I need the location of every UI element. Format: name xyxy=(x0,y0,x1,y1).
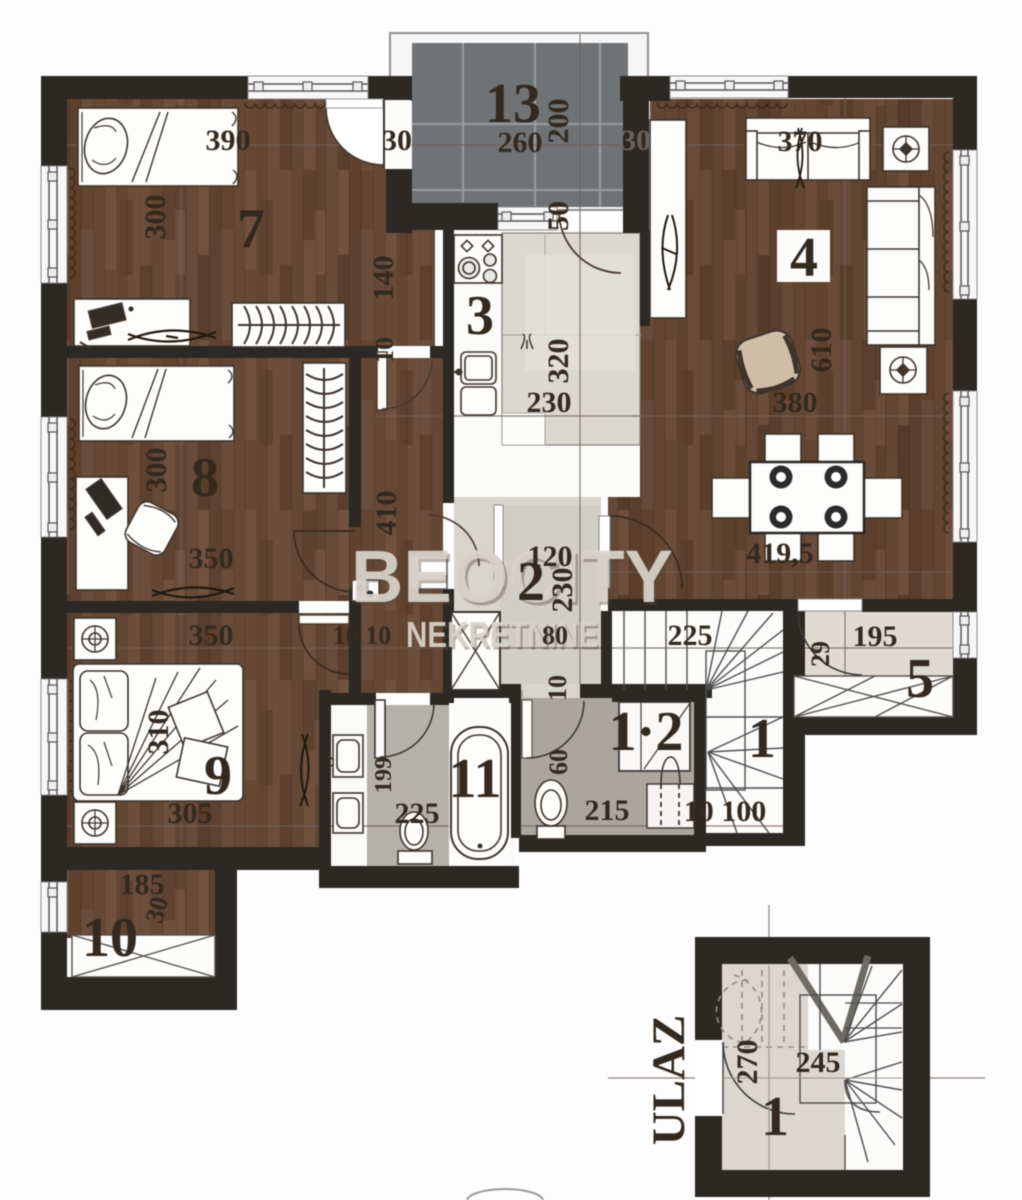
svg-text:260: 260 xyxy=(498,126,543,159)
svg-text:230: 230 xyxy=(527,386,572,419)
svg-text:30: 30 xyxy=(621,124,651,157)
svg-text:80: 80 xyxy=(542,621,568,650)
svg-text:1: 1 xyxy=(761,1086,789,1148)
svg-text:11: 11 xyxy=(449,748,502,810)
svg-text:10: 10 xyxy=(543,675,572,701)
svg-text:320: 320 xyxy=(542,339,575,384)
svg-text:10 100: 10 100 xyxy=(684,795,767,828)
svg-text:610: 610 xyxy=(805,328,838,373)
svg-text:30: 30 xyxy=(382,124,412,157)
svg-text:245: 245 xyxy=(796,1046,841,1079)
svg-text:230: 230 xyxy=(546,568,579,613)
svg-text:10: 10 xyxy=(82,907,138,969)
svg-text:10: 10 xyxy=(370,337,399,363)
svg-text:NEKRETNINE: NEKRETNINE xyxy=(406,614,598,655)
svg-text:390: 390 xyxy=(206,124,251,157)
svg-text:300: 300 xyxy=(139,195,172,240)
svg-text:195: 195 xyxy=(853,620,898,653)
svg-text:410: 410 xyxy=(370,491,403,536)
svg-text:ULAZ: ULAZ xyxy=(643,1015,695,1146)
svg-text:199: 199 xyxy=(371,757,397,793)
svg-text:225: 225 xyxy=(395,797,440,830)
svg-text:305: 305 xyxy=(168,797,213,830)
svg-text:380: 380 xyxy=(773,386,818,419)
svg-text:50: 50 xyxy=(542,201,575,231)
svg-text:29: 29 xyxy=(806,641,835,667)
svg-text:8: 8 xyxy=(191,447,219,509)
svg-text:225: 225 xyxy=(668,619,713,652)
svg-text:5: 5 xyxy=(906,648,934,710)
svg-text:200: 200 xyxy=(542,99,575,144)
svg-text:350: 350 xyxy=(189,619,234,652)
svg-text:BEOCITY: BEOCITY xyxy=(351,535,673,618)
svg-text:140: 140 xyxy=(367,256,400,301)
svg-text:3: 3 xyxy=(466,285,494,347)
svg-text:419,5: 419,5 xyxy=(746,537,814,570)
svg-text:270: 270 xyxy=(731,1040,764,1085)
svg-text:300: 300 xyxy=(140,448,173,493)
svg-text:4: 4 xyxy=(790,227,818,289)
svg-text:215: 215 xyxy=(585,794,630,827)
svg-text:1: 1 xyxy=(748,708,776,770)
svg-text:350: 350 xyxy=(189,542,234,575)
svg-text:370: 370 xyxy=(778,125,823,158)
svg-text:185: 185 xyxy=(120,868,165,901)
svg-text:60: 60 xyxy=(544,749,573,775)
svg-text:1·2: 1·2 xyxy=(609,701,684,763)
svg-text:7: 7 xyxy=(237,198,265,260)
svg-text:310: 310 xyxy=(142,710,175,755)
svg-text:10 10: 10 10 xyxy=(333,621,392,650)
